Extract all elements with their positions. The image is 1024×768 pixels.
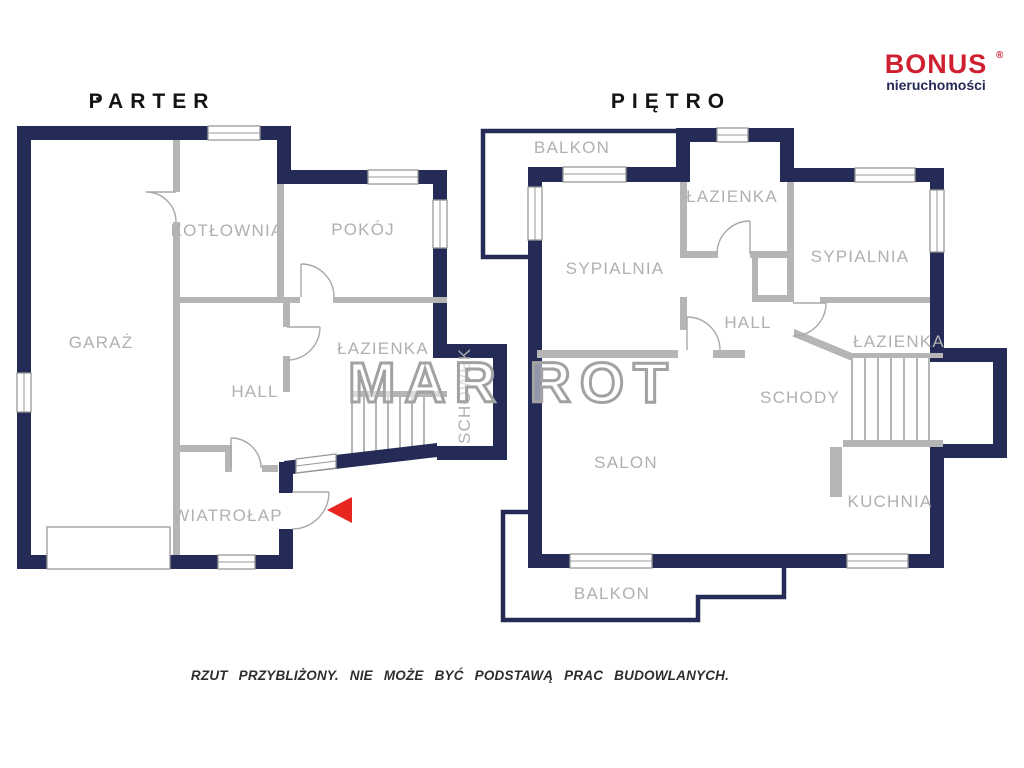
pietro-stairs [852, 357, 929, 440]
room-label-kuchnia: KUCHNIA [848, 492, 933, 511]
garage-door [47, 527, 170, 569]
room-label-garaz: GARAŻ [69, 333, 134, 352]
room-label-sypialnia-left: SYPIALNIA [566, 259, 665, 278]
room-label-hall-parter: HALL [231, 382, 278, 401]
room-label-balkon-top: BALKON [534, 138, 610, 157]
floorplan-page: KOTŁOWNIA POKÓJ GARAŻ ŁAZIENKA HALL WIAT… [0, 0, 1024, 768]
floorplan-drawing: KOTŁOWNIA POKÓJ GARAŻ ŁAZIENKA HALL WIAT… [0, 0, 1024, 768]
room-label-balkon-bottom: BALKON [574, 584, 650, 603]
disclaimer-text: RZUT PRZYBLIŻONY. NIE MOŻE BYĆ PODSTAWĄ … [191, 668, 729, 683]
pietro-title: PIĘTRO [611, 90, 731, 113]
parter-plan: KOTŁOWNIA POKÓJ GARAŻ ŁAZIENKA HALL WIAT… [17, 126, 507, 569]
room-label-salon: SALON [594, 453, 658, 472]
watermark: MAR ROT [348, 351, 677, 415]
room-label-wiatrolap: WIATROŁAP [173, 506, 283, 525]
logo-brand-text: BONUS [885, 49, 988, 79]
room-label-schody: SCHODY [760, 388, 840, 407]
room-label-kotlownia: KOTŁOWNIA [171, 221, 284, 240]
bonus-logo: BONUS ® nieruchomości [885, 49, 1004, 93]
room-label-pokoj: POKÓJ [331, 220, 395, 239]
room-label-lazienka-right: ŁAZIENKA [853, 332, 945, 351]
room-label-hall-pietro: HALL [724, 313, 771, 332]
logo-subtitle-text: nieruchomości [886, 77, 986, 93]
entrance-arrow-icon [327, 497, 352, 523]
parter-title: PARTER [89, 90, 216, 113]
room-label-sypialnia-right: SYPIALNIA [811, 247, 910, 266]
room-label-lazienka-top: ŁAZIENKA [686, 187, 778, 206]
logo-registered-icon: ® [996, 50, 1004, 61]
